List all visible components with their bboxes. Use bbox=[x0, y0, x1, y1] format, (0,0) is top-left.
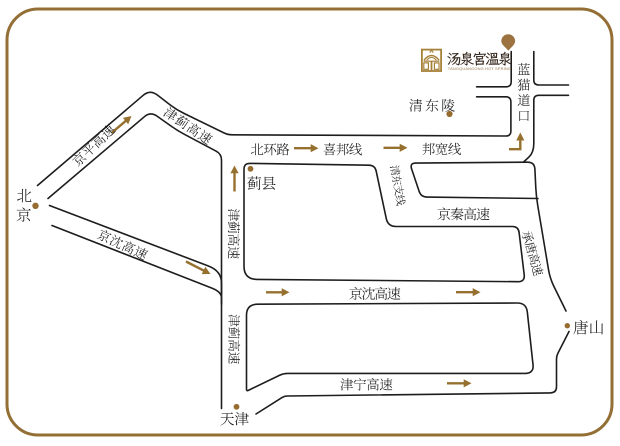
svg-text:TANGQUANGONG HOT SPRING: TANGQUANGONG HOT SPRING bbox=[448, 66, 511, 71]
